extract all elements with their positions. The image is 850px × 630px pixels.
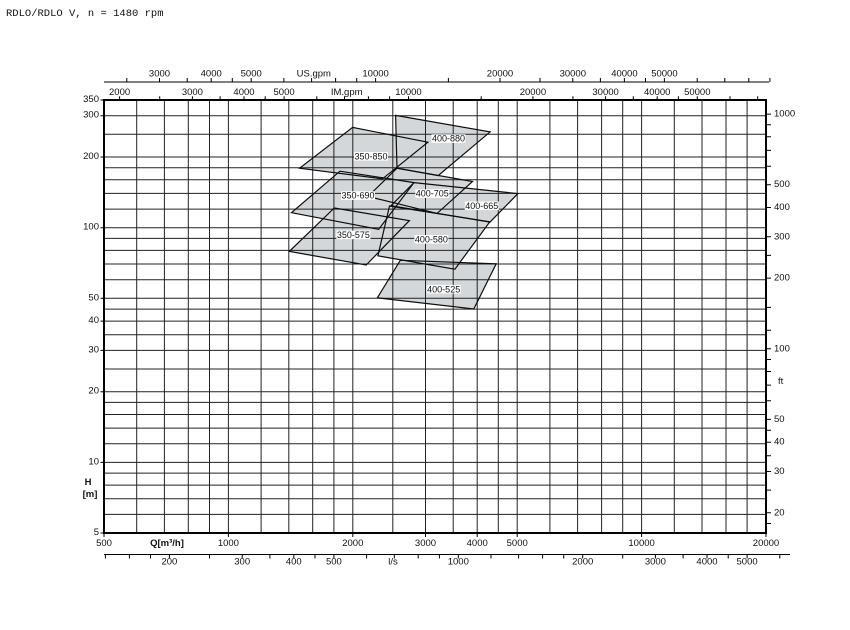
svg-text:3000: 3000: [645, 557, 666, 568]
svg-text:200: 200: [83, 151, 99, 162]
svg-text:[m]: [m]: [83, 489, 98, 500]
svg-text:4000: 4000: [467, 538, 488, 549]
svg-text:20000: 20000: [753, 538, 779, 549]
svg-text:US.gpm: US.gpm: [297, 68, 331, 79]
svg-text:400-880: 400-880: [432, 134, 465, 144]
svg-text:50000: 50000: [651, 68, 677, 79]
svg-text:4000: 4000: [233, 87, 254, 98]
svg-text:50000: 50000: [684, 87, 710, 98]
svg-text:3000: 3000: [182, 87, 203, 98]
svg-text:350-850: 350-850: [354, 151, 387, 161]
svg-text:5000: 5000: [737, 557, 758, 568]
svg-text:40: 40: [774, 437, 785, 448]
svg-text:350-690: 350-690: [341, 191, 374, 201]
svg-text:400: 400: [286, 557, 302, 568]
svg-text:30: 30: [774, 466, 785, 477]
svg-text:30: 30: [88, 344, 99, 355]
svg-text:1000: 1000: [774, 109, 795, 120]
svg-text:30000: 30000: [560, 68, 586, 79]
svg-text:300: 300: [234, 557, 250, 568]
svg-text:ft: ft: [778, 376, 784, 387]
svg-text:20: 20: [88, 386, 99, 397]
svg-text:IM.gpm: IM.gpm: [331, 87, 363, 98]
svg-text:2000: 2000: [342, 538, 363, 549]
svg-text:10: 10: [88, 456, 99, 467]
svg-text:4000: 4000: [201, 68, 222, 79]
svg-text:350-575: 350-575: [337, 230, 370, 240]
svg-text:10000: 10000: [628, 538, 654, 549]
svg-text:30000: 30000: [592, 87, 618, 98]
svg-text:5000: 5000: [274, 87, 295, 98]
svg-text:300: 300: [774, 231, 790, 242]
svg-text:Q[m³/h]: Q[m³/h]: [150, 538, 184, 549]
svg-text:400: 400: [774, 202, 790, 213]
svg-text:400-705: 400-705: [416, 189, 449, 199]
svg-text:300: 300: [83, 110, 99, 121]
svg-text:10000: 10000: [362, 68, 388, 79]
svg-text:50: 50: [88, 292, 99, 303]
svg-text:20000: 20000: [487, 68, 513, 79]
svg-text:5000: 5000: [507, 538, 528, 549]
svg-text:3000: 3000: [149, 68, 170, 79]
svg-text:5000: 5000: [241, 68, 262, 79]
svg-text:2000: 2000: [109, 87, 130, 98]
svg-text:400-580: 400-580: [415, 234, 448, 244]
svg-text:1000: 1000: [448, 557, 469, 568]
svg-text:1000: 1000: [218, 538, 239, 549]
svg-text:3000: 3000: [415, 538, 436, 549]
svg-text:500: 500: [326, 557, 342, 568]
svg-text:100: 100: [774, 343, 790, 354]
svg-text:200: 200: [774, 273, 790, 284]
svg-text:2000: 2000: [572, 557, 593, 568]
svg-text:20: 20: [774, 507, 785, 518]
svg-text:200: 200: [161, 557, 177, 568]
svg-text:20000: 20000: [520, 87, 546, 98]
svg-text:400-665: 400-665: [465, 201, 498, 211]
svg-text:500: 500: [96, 538, 112, 549]
svg-text:l/s: l/s: [388, 557, 398, 568]
svg-text:RDLO/RDLO V, n = 1480 rpm: RDLO/RDLO V, n = 1480 rpm: [6, 8, 164, 20]
svg-text:40000: 40000: [644, 87, 670, 98]
svg-text:H: H: [85, 477, 92, 488]
svg-text:4000: 4000: [696, 557, 717, 568]
svg-text:5: 5: [94, 527, 99, 538]
svg-text:350: 350: [83, 94, 99, 105]
svg-text:100: 100: [83, 222, 99, 233]
svg-text:40000: 40000: [611, 68, 637, 79]
svg-text:400-525: 400-525: [427, 284, 460, 294]
svg-text:10000: 10000: [395, 87, 421, 98]
svg-text:500: 500: [774, 179, 790, 190]
svg-text:50: 50: [774, 414, 785, 425]
svg-text:40: 40: [88, 315, 99, 326]
